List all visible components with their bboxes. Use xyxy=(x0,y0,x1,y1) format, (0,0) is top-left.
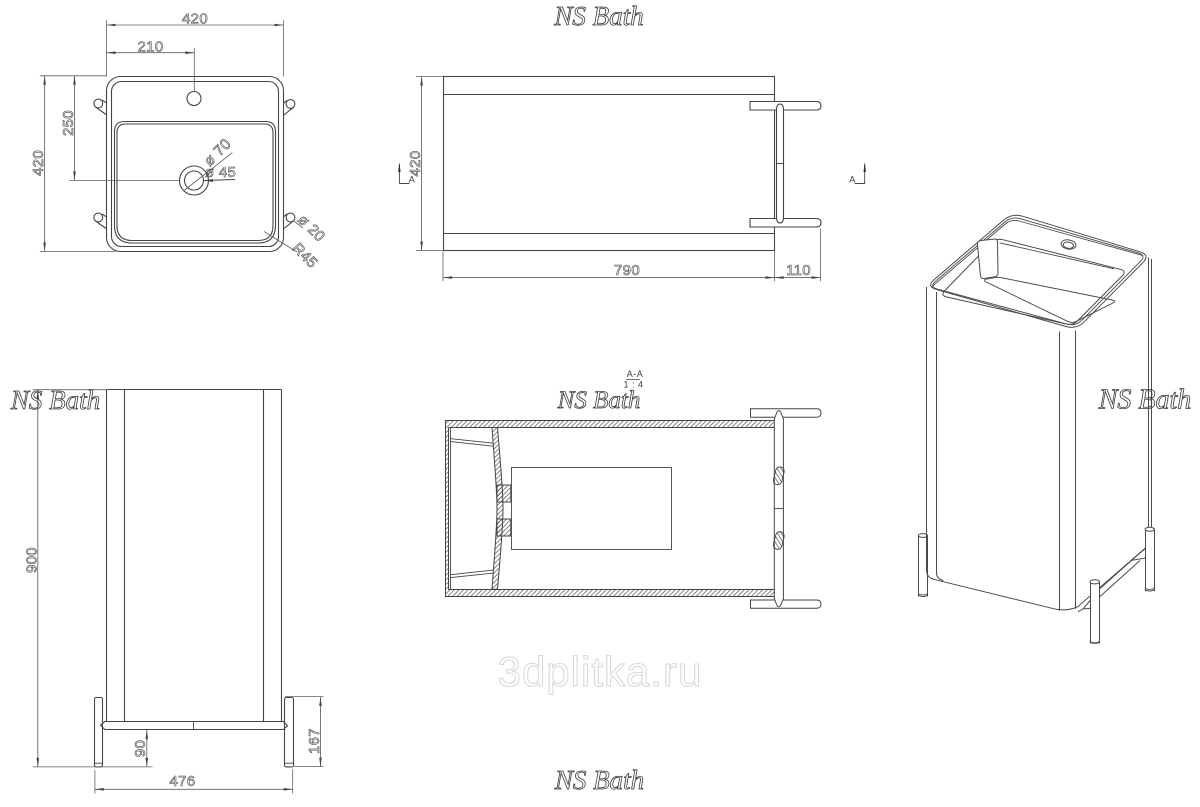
svg-text:NS Bath: NS Bath xyxy=(1098,385,1192,416)
svg-text:420: 420 xyxy=(30,150,47,176)
svg-text:3dplitka.ru: 3dplitka.ru xyxy=(498,648,703,695)
svg-text:NS Bath: NS Bath xyxy=(557,387,641,414)
svg-text:110: 110 xyxy=(786,262,811,279)
svg-text:NS Bath: NS Bath xyxy=(554,765,644,795)
svg-text:A-A: A-A xyxy=(627,369,644,379)
svg-text:167: 167 xyxy=(306,728,323,754)
svg-text:NS Bath: NS Bath xyxy=(553,1,643,31)
svg-text:420: 420 xyxy=(182,11,208,28)
svg-text:90: 90 xyxy=(132,740,149,757)
svg-text:790: 790 xyxy=(614,262,640,279)
svg-text:NS Bath: NS Bath xyxy=(10,385,100,415)
svg-text:900: 900 xyxy=(23,547,40,573)
svg-text:A: A xyxy=(849,175,855,185)
svg-text:420: 420 xyxy=(407,151,424,177)
svg-text:250: 250 xyxy=(60,110,77,136)
svg-text:ø 45: ø 45 xyxy=(205,164,236,181)
svg-text:476: 476 xyxy=(170,773,196,790)
svg-text:210: 210 xyxy=(138,38,164,55)
